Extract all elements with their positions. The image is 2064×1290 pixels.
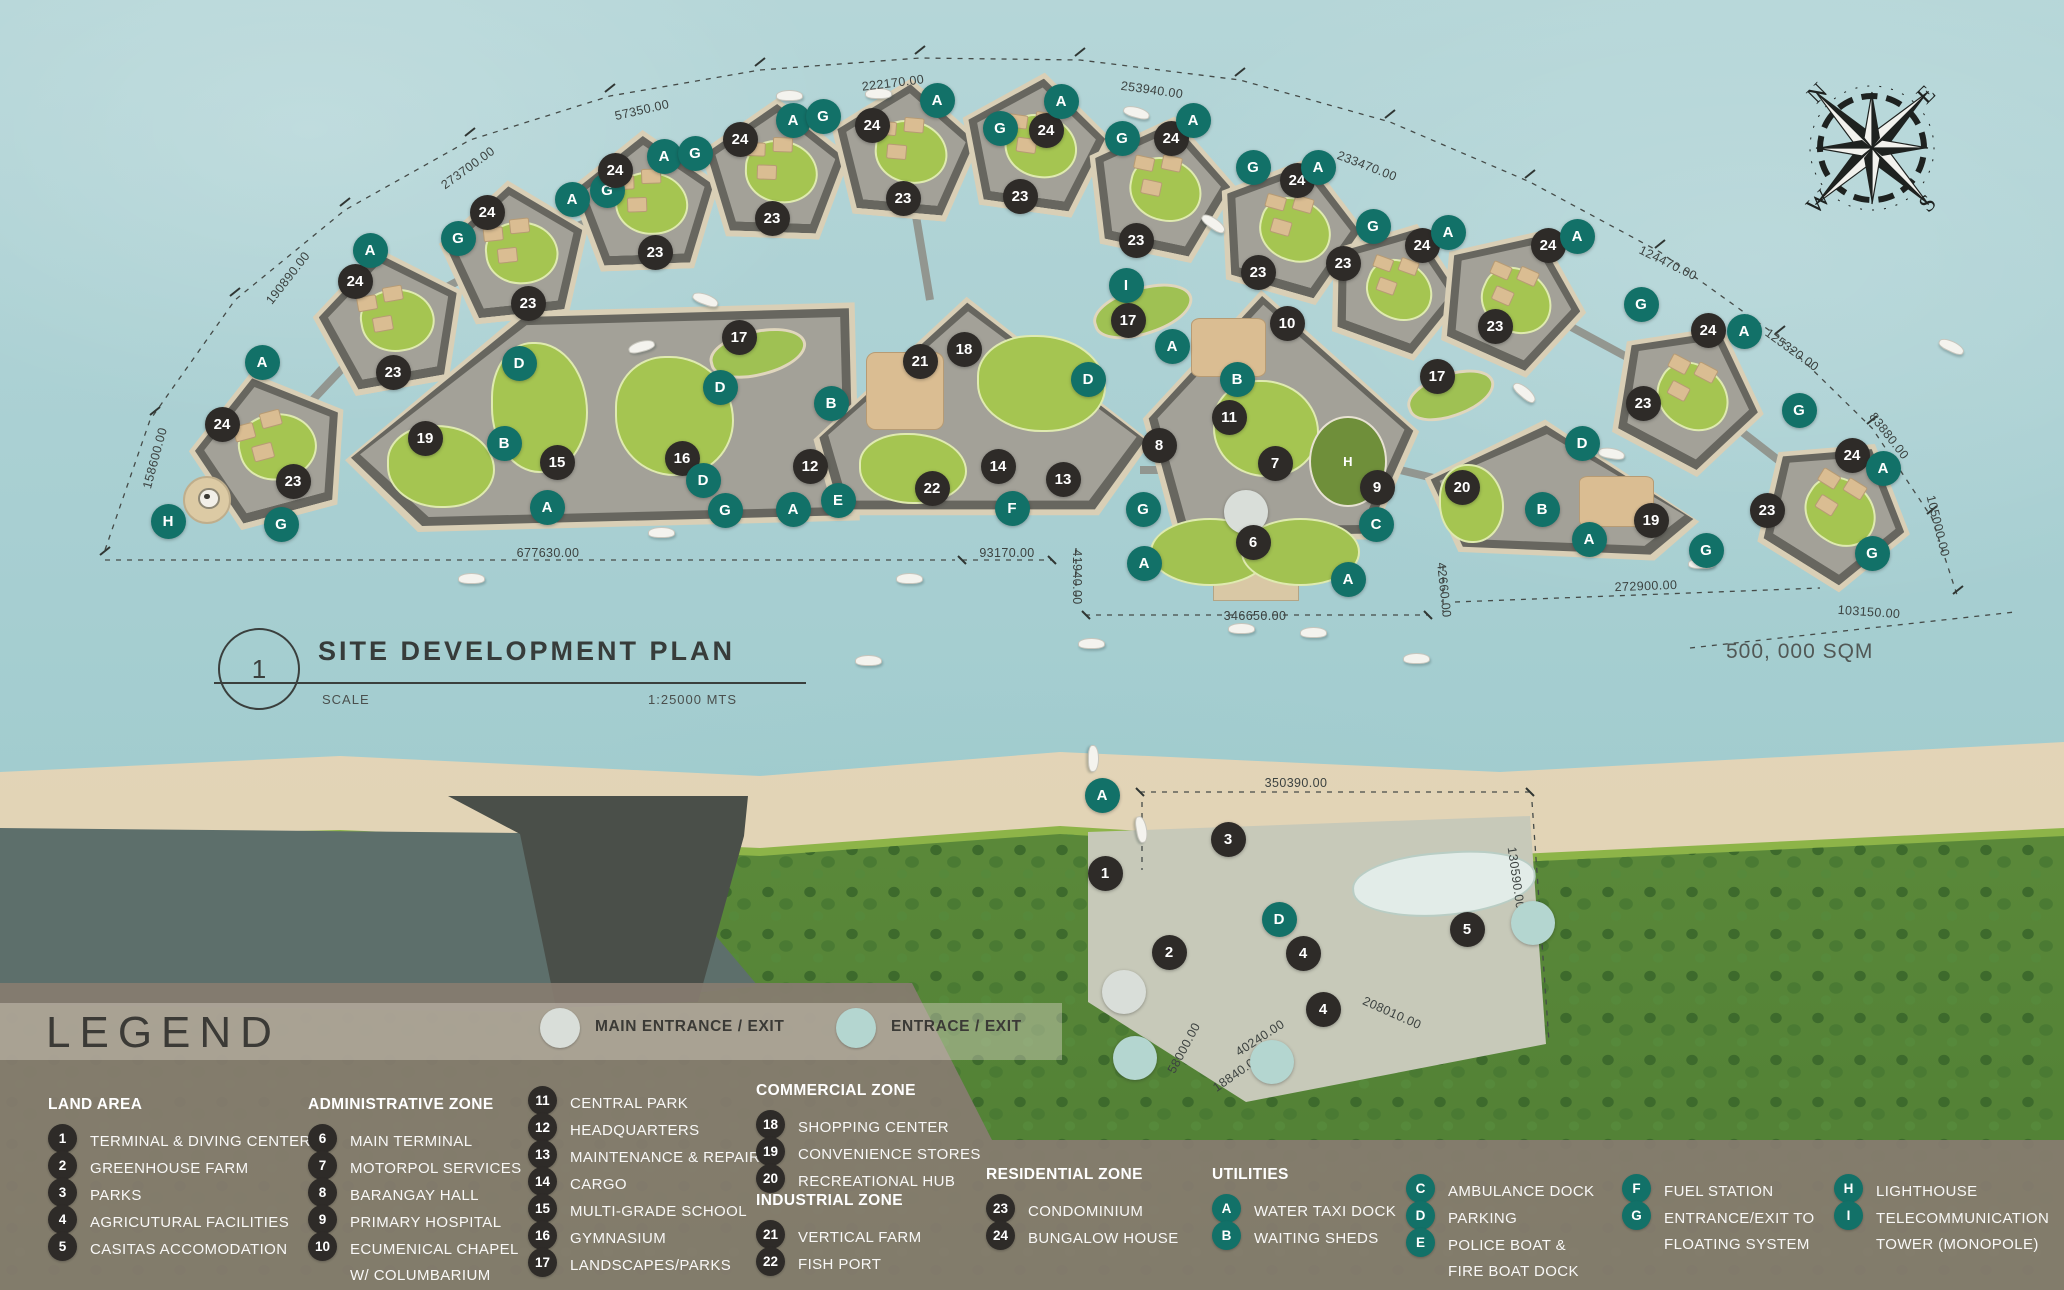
legend-section-header: COMMERCIAL ZONE <box>756 1082 916 1100</box>
legend-item-key: 13 <box>528 1140 557 1169</box>
legend-item-key: 20 <box>756 1164 785 1193</box>
legend-section-header: UTILITIES <box>1212 1166 1289 1184</box>
legend-item-key: 4 <box>48 1205 77 1234</box>
legend-section-header: INDUSTRIAL ZONE <box>756 1192 903 1210</box>
site-development-plan: H2423AGH2423AG2423AG2423AG2423AG2423AG24… <box>0 0 2064 1290</box>
legend-item-key: 5 <box>48 1232 77 1261</box>
legend-item: 5CASITAS ACCOMODATION <box>48 1232 287 1263</box>
legend-item-label: CASITAS ACCOMODATION <box>90 1237 287 1263</box>
legend-item-key: 18 <box>756 1110 785 1139</box>
legend-item-key: 2 <box>48 1151 77 1180</box>
legend-item-key: 8 <box>308 1178 337 1207</box>
entrance-icon <box>836 1008 876 1048</box>
legend-item-key: I <box>1834 1201 1863 1230</box>
legend-entrance-item: MAIN ENTRANCE / EXIT <box>540 1008 784 1048</box>
legend-item-key: 24 <box>986 1221 1015 1250</box>
legend-item-key: 3 <box>48 1178 77 1207</box>
legend-item-label: WAITING SHEDS <box>1254 1226 1379 1252</box>
legend-section-header: LAND AREA <box>48 1096 142 1114</box>
legend-item: 10ECUMENICAL CHAPEL W/ COLUMBARIUM <box>308 1232 519 1289</box>
legend-item-key: 23 <box>986 1194 1015 1223</box>
legend-item-key: 19 <box>756 1137 785 1166</box>
legend-item-key: 15 <box>528 1194 557 1223</box>
legend-item-key: F <box>1622 1174 1651 1203</box>
legend-section-header: RESIDENTIAL ZONE <box>986 1166 1143 1184</box>
legend-item: GENTRANCE/EXIT TO FLOATING SYSTEM <box>1622 1201 1815 1258</box>
legend-item-key: 10 <box>308 1232 337 1261</box>
legend-item-key: D <box>1406 1201 1435 1230</box>
legend-item-key: 7 <box>308 1151 337 1180</box>
legend-item-key: 17 <box>528 1248 557 1277</box>
legend-item: 22FISH PORT <box>756 1247 881 1278</box>
legend-item: 24BUNGALOW HOUSE <box>986 1221 1179 1252</box>
legend-item-key: 16 <box>528 1221 557 1250</box>
legend-item-label: POLICE BOAT & FIRE BOAT DOCK <box>1448 1233 1579 1285</box>
legend-section-header: ADMINISTRATIVE ZONE <box>308 1096 494 1114</box>
main-entrance-icon <box>540 1008 580 1048</box>
legend-entrance-item: ENTRACE / EXIT <box>836 1008 1022 1048</box>
legend-item-key: 21 <box>756 1220 785 1249</box>
legend-item-label: FISH PORT <box>798 1252 881 1278</box>
legend-entrance-label: ENTRACE / EXIT <box>891 1018 1022 1036</box>
legend-item: EPOLICE BOAT & FIRE BOAT DOCK <box>1406 1228 1579 1285</box>
legend-item-key: 6 <box>308 1124 337 1153</box>
legend-item: ITELECOMMUNICATION TOWER (MONOPOLE) <box>1834 1201 2049 1258</box>
legend-item-key: 22 <box>756 1247 785 1276</box>
legend-entrance-label: MAIN ENTRANCE / EXIT <box>595 1018 784 1036</box>
legend-item-key: H <box>1834 1174 1863 1203</box>
legend-entries: MAIN ENTRANCE / EXITENTRACE / EXITLAND A… <box>0 0 2064 1290</box>
legend-item-key: E <box>1406 1228 1435 1257</box>
legend-item-key: G <box>1622 1201 1651 1230</box>
legend-item-key: B <box>1212 1221 1241 1250</box>
legend-item-key: C <box>1406 1174 1435 1203</box>
legend-item-key: 1 <box>48 1124 77 1153</box>
legend-item-label: BUNGALOW HOUSE <box>1028 1226 1179 1252</box>
legend-item: BWAITING SHEDS <box>1212 1221 1379 1252</box>
legend-item-key: 11 <box>528 1086 557 1115</box>
legend-item-label: ENTRANCE/EXIT TO FLOATING SYSTEM <box>1664 1206 1815 1258</box>
legend-item: 17LANDSCAPES/PARKS <box>528 1248 731 1279</box>
legend-item-label: LANDSCAPES/PARKS <box>570 1253 731 1279</box>
legend-item-label: ECUMENICAL CHAPEL W/ COLUMBARIUM <box>350 1237 519 1289</box>
legend-item: 20RECREATIONAL HUB <box>756 1164 955 1195</box>
legend-item-key: 12 <box>528 1113 557 1142</box>
legend-item-key: 9 <box>308 1205 337 1234</box>
legend-item-label: TELECOMMUNICATION TOWER (MONOPOLE) <box>1876 1206 2049 1258</box>
legend-item-key: A <box>1212 1194 1241 1223</box>
legend-item-key: 14 <box>528 1167 557 1196</box>
